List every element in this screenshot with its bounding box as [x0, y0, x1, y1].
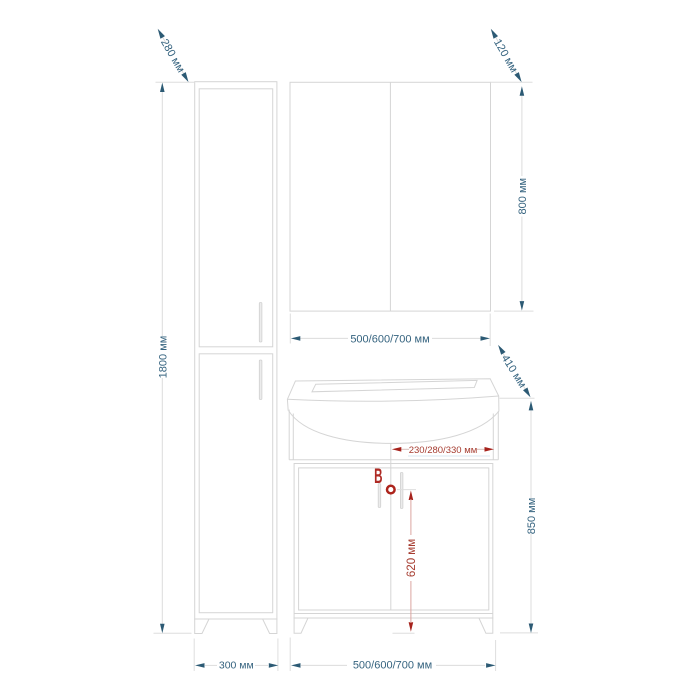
svg-text:500/600/700 мм: 500/600/700 мм	[350, 333, 429, 345]
svg-text:850 мм: 850 мм	[526, 498, 538, 535]
svg-text:620 мм: 620 мм	[406, 539, 418, 577]
svg-text:1800 мм: 1800 мм	[158, 336, 170, 379]
svg-text:В: В	[374, 463, 382, 488]
svg-text:500/600/700 мм: 500/600/700 мм	[353, 660, 432, 672]
svg-text:230/280/330 мм: 230/280/330 мм	[409, 445, 478, 456]
svg-text:300 мм: 300 мм	[219, 660, 254, 672]
svg-text:800 мм: 800 мм	[517, 178, 529, 215]
